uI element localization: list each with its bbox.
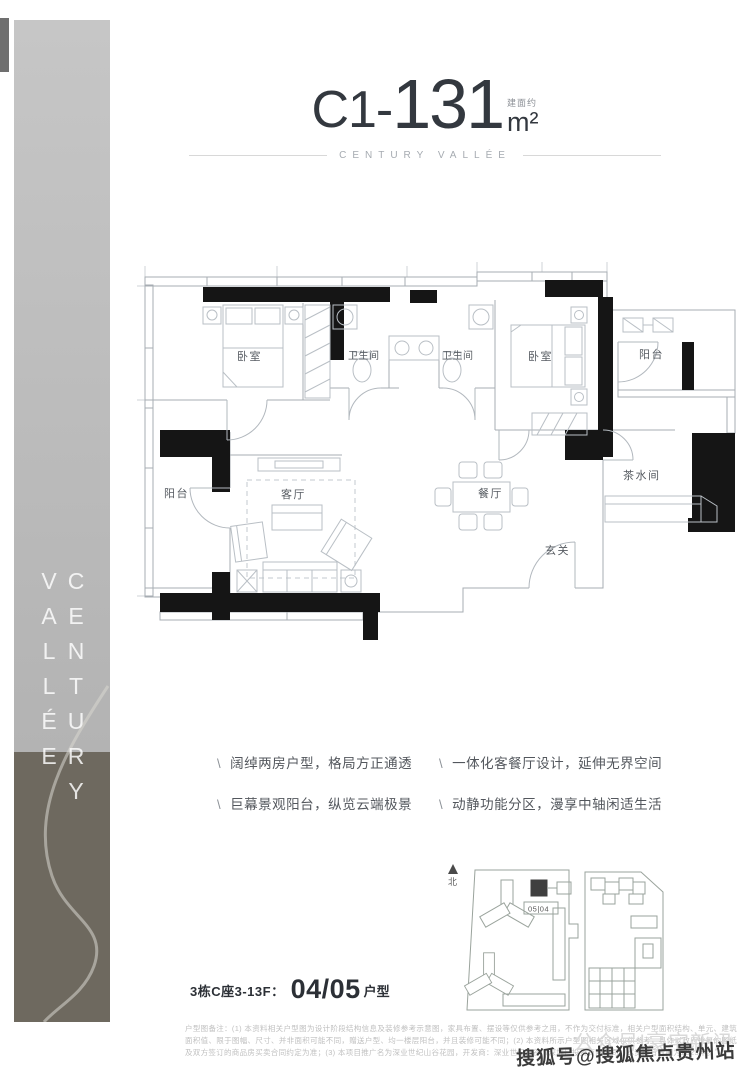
unit-location: 3栋C座3-13F：	[190, 981, 285, 1003]
north-arrow-icon: 北	[448, 864, 458, 887]
subtitle-left-dash	[189, 155, 327, 156]
site-unit-label: 05|04	[528, 905, 549, 914]
header: C1- 131 建面约 m² CENTURY VALLÉE	[110, 72, 740, 161]
room-label-living: 客厅	[281, 487, 306, 501]
room-label-bath-right: 卫生间	[442, 349, 474, 362]
feature-column-right: \ 一体化客餐厅设计，延伸无界空间 \ 动静功能分区，漫享中轴闲适生活	[439, 752, 662, 834]
structural-walls	[160, 280, 735, 640]
room-label-dining: 餐厅	[478, 486, 503, 500]
unit-number: 04/05	[291, 976, 361, 1003]
feature-text: 巨幕景观阳台，纵览云端极景	[230, 793, 412, 813]
poster-page: CENTURY VALLÉE C1- 131 建面约 m² CENTURY VA…	[0, 0, 740, 1073]
neighbor-buildings	[589, 878, 661, 1008]
room-label-bedroom-right: 卧室	[528, 349, 553, 363]
site-plan: 北	[445, 860, 737, 1015]
unit-type-label: 户型	[364, 981, 390, 1003]
svg-text:北: 北	[448, 877, 457, 887]
floor-plan: 卧室 卫生间 卫生间 卧室 阳台 茶水间 阳台 客厅 餐厅 玄关	[137, 248, 737, 648]
sidebar-brand-text: CENTURY VALLÉE	[35, 568, 89, 1022]
feature-text: 动静功能分区，漫享中轴闲适生活	[452, 793, 662, 813]
room-label-bath-left: 卫生间	[348, 349, 380, 362]
living-room-furniture-icon	[231, 458, 372, 592]
slash-icon: \	[217, 797, 221, 812]
slash-icon: \	[217, 756, 221, 771]
wardrobe-icon	[305, 305, 330, 398]
room-label-entry: 玄关	[545, 543, 570, 557]
bathroom-fixtures-icon	[333, 305, 493, 382]
feature-item: \ 阔绰两房户型，格局方正通透	[217, 752, 412, 772]
subtitle-right-dash	[523, 155, 661, 156]
feature-text: 一体化客餐厅设计，延伸无界空间	[452, 752, 662, 772]
bed-icon	[203, 305, 303, 387]
site-parcels	[464, 870, 663, 1010]
bed-icon-2	[511, 307, 587, 435]
room-label-tea-room: 茶水间	[623, 469, 661, 482]
feature-item: \ 巨幕景观阳台，纵览云端极景	[217, 793, 412, 813]
unit-title: C1- 131 建面约 m²	[110, 72, 740, 136]
area-unit: m²	[507, 109, 538, 136]
room-label-balcony-right: 阳台	[639, 347, 664, 361]
room-label-balcony-left: 阳台	[164, 486, 189, 500]
unit-code: C1-	[311, 84, 392, 136]
feature-list: \ 阔绰两房户型，格局方正通透 \ 巨幕景观阳台，纵览云端极景 \ 一体化客餐厅…	[137, 752, 737, 832]
corner-mark	[0, 18, 9, 72]
area-value: 131	[392, 72, 503, 136]
area-unit-block: 建面约 m²	[507, 99, 538, 136]
feature-item: \ 一体化客餐厅设计，延伸无界空间	[439, 752, 662, 772]
brand-sidebar: CENTURY VALLÉE	[14, 20, 110, 1022]
subtitle-text: CENTURY VALLÉE	[339, 150, 511, 161]
slash-icon: \	[439, 756, 443, 771]
door-arcs	[190, 342, 658, 588]
slash-icon: \	[439, 797, 443, 812]
feature-text: 阔绰两房户型，格局方正通透	[230, 752, 412, 772]
feature-item: \ 动静功能分区，漫享中轴闲适生活	[439, 793, 662, 813]
ac-unit-icon	[623, 318, 673, 332]
brand-subtitle: CENTURY VALLÉE	[110, 150, 740, 161]
room-label-bedroom-left: 卧室	[237, 349, 262, 363]
feature-column-left: \ 阔绰两房户型，格局方正通透 \ 巨幕景观阳台，纵览云端极景	[217, 752, 412, 834]
unit-info: 3栋C座3-13F： 04/05 户型	[190, 976, 390, 1003]
